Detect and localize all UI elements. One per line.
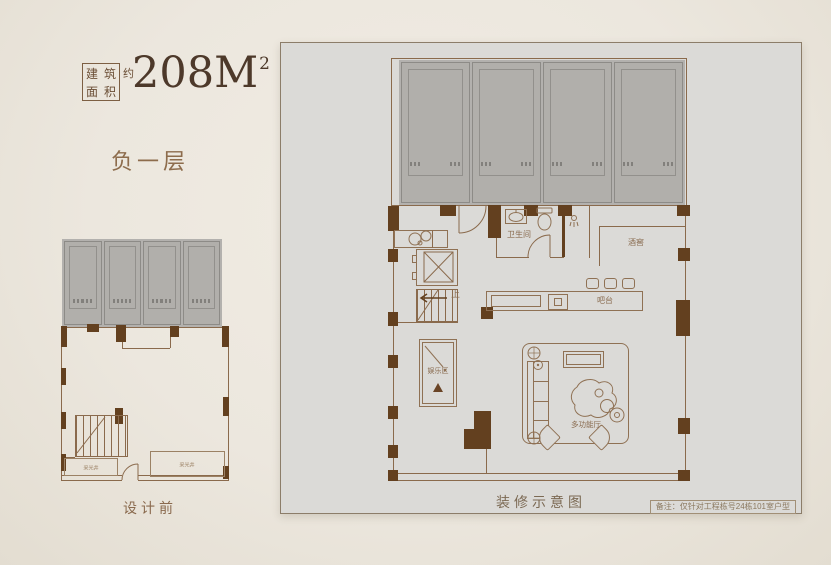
area-value: 208M2 [132,52,270,95]
plant-center [615,413,620,418]
tray [595,389,603,397]
stair-break-line [77,417,105,453]
side-table-dot [537,364,539,366]
basin [421,231,431,241]
brochure-page: 建 筑 面 积 约 208M2 负一层 [0,0,831,565]
floor-label: 负一层 [0,144,300,176]
plant [610,408,624,422]
plan-before: 采光井 采光井 [61,239,231,481]
basin [409,233,421,245]
plan-after-panel: 上 卫生间 酒窖 吧台 娱乐区 多功能厅 [280,42,802,514]
rack-triangle [433,383,443,392]
shower-spray [577,222,578,226]
area-char: 建 [86,65,98,82]
cue-line [425,346,443,367]
toilet-tank [537,208,552,213]
building-area-label-box: 建 筑 面 积 [82,63,120,101]
area-char: 筑 [104,65,116,82]
door-swing-arc [459,206,486,233]
door-swing-arc [122,464,138,480]
area-char: 积 [104,83,116,100]
plan-before-caption: 设计前 [0,498,300,518]
stair-break-line [418,290,438,320]
area-number: 208M [132,48,258,98]
area-char: 面 [86,83,98,100]
shower-spray [570,222,571,226]
cue-ball [444,369,447,372]
shower-head [572,216,577,221]
note-box: 备注：仅针对工程栋号24栋101室户型 [650,500,796,514]
area-superscript: 2 [259,54,270,74]
sink-basin [509,213,523,222]
plan-before-overlay [61,239,231,481]
plan-after-overlay [281,43,803,515]
door-swing-arc [528,235,550,257]
toilet-bowl [538,214,551,230]
